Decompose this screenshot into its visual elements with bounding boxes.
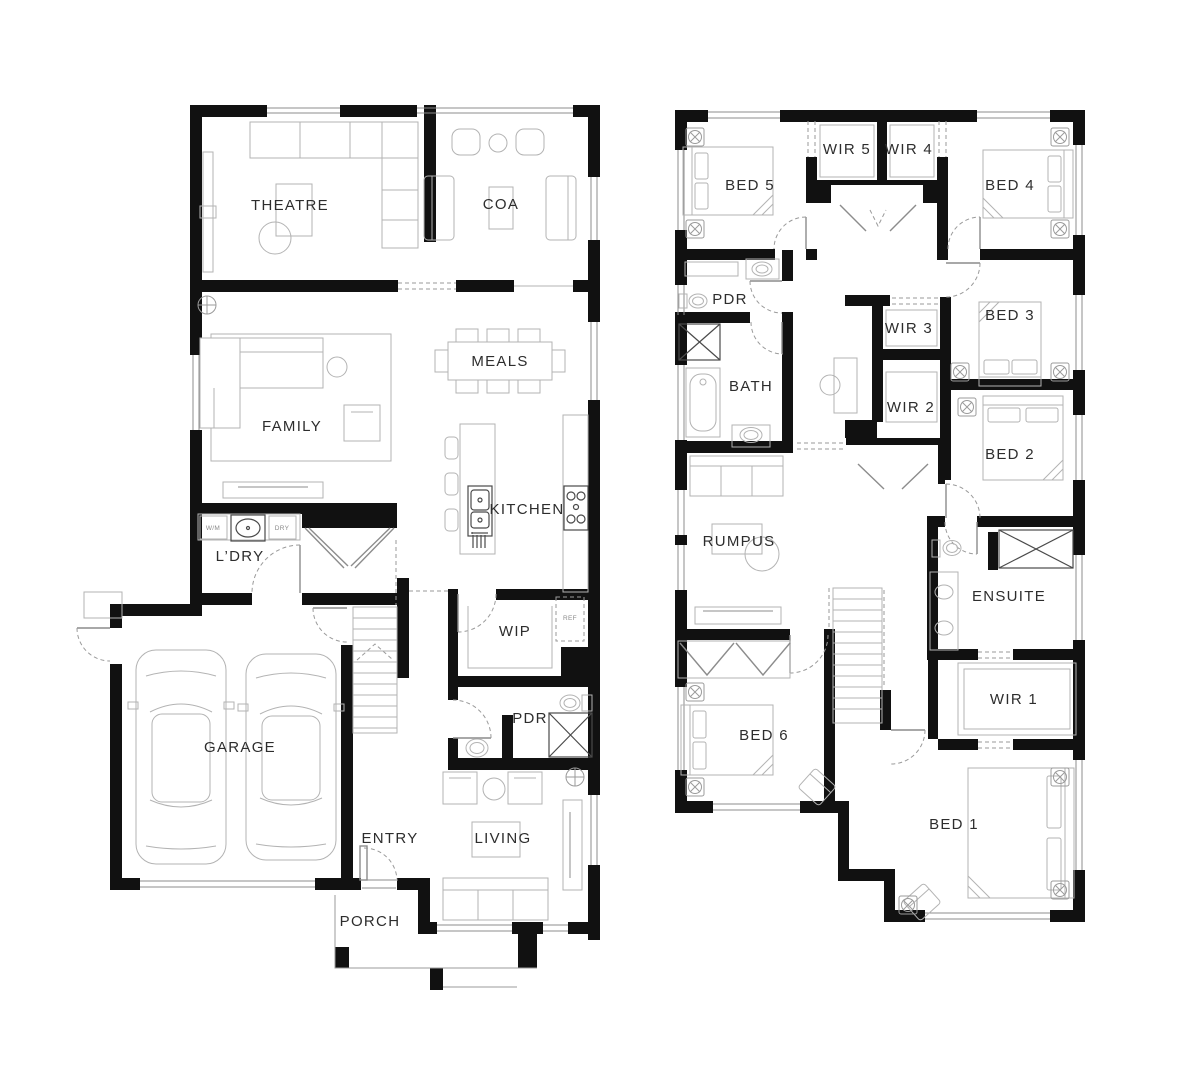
room-label-bed3: BED 3	[985, 307, 1035, 324]
ground-doors	[77, 528, 496, 888]
room-label-wir4: WIR 4	[885, 141, 933, 158]
room-label-bath: BATH	[729, 378, 773, 395]
stool	[445, 509, 458, 531]
cross-circle-icon	[566, 768, 584, 786]
room-label-wir1: WIR 1	[990, 691, 1038, 708]
x-circle-icon	[951, 363, 969, 381]
desk	[834, 358, 857, 413]
ground-floor-plan: W/M DRY	[77, 105, 600, 990]
room-label-bed1: BED 1	[929, 816, 979, 833]
room-label-garage: GARAGE	[204, 739, 276, 756]
x-circle-icon	[686, 778, 704, 796]
sofa	[546, 176, 576, 240]
family-furniture	[200, 334, 391, 498]
room-label-living: LIVING	[475, 830, 532, 847]
study-nook	[820, 358, 857, 413]
room-label-bed6: BED 6	[739, 727, 789, 744]
room-label-family: FAMILY	[262, 418, 322, 435]
stool	[445, 473, 458, 495]
room-label-rumpus: RUMPUS	[703, 533, 776, 550]
x-circle-icon	[958, 398, 976, 416]
armchair	[443, 772, 477, 804]
ground-walls	[110, 105, 600, 990]
room-label-powder: PDR	[512, 710, 548, 727]
sofa	[690, 456, 783, 496]
laundry-fixtures: W/M DRY	[198, 514, 300, 541]
x-circle-icon	[686, 220, 704, 238]
first-stairs	[833, 588, 882, 723]
bed	[968, 768, 1074, 898]
first-windows	[678, 112, 1082, 919]
washer-label: W/M	[206, 525, 220, 532]
kitchen-island	[460, 424, 495, 554]
kitchen-furniture	[445, 415, 588, 641]
theatre-sofa	[250, 122, 418, 158]
cross-circle-icon	[198, 296, 216, 314]
room-label-wir3: WIR 3	[885, 320, 933, 337]
room-label-entry: ENTRY	[361, 830, 418, 847]
armchair	[516, 129, 544, 155]
room-label-bed4: BED 4	[985, 177, 1035, 194]
fridge-label: REF	[563, 615, 577, 622]
car	[128, 650, 234, 864]
bed	[983, 396, 1063, 480]
x-circle-icon	[686, 683, 704, 701]
room-label-meals: MEALS	[471, 353, 528, 370]
floorplan-canvas: W/M DRY	[0, 0, 1191, 1079]
room-label-wir2: WIR 2	[887, 399, 935, 416]
room-label-wir5: WIR 5	[823, 141, 871, 158]
coach-furniture	[424, 129, 576, 240]
room-label-porch: PORCH	[340, 913, 401, 930]
x-circle-icon	[1051, 881, 1069, 899]
x-circle-icon	[686, 128, 704, 146]
ground-stairs	[353, 607, 397, 733]
room-label-ensuite: ENSUITE	[972, 588, 1046, 605]
cooktop	[564, 486, 588, 530]
room-label-kitchen: KITCHEN	[490, 501, 565, 518]
x-circle-icon	[1051, 128, 1069, 146]
ground-room-labels: THEATRE COA MEALS FAMILY KITCHEN L’DRY W…	[204, 196, 577, 930]
sofa	[443, 878, 548, 920]
toilet	[679, 294, 687, 308]
x-circle-icon	[1051, 768, 1069, 786]
x-circle-icon	[1051, 363, 1069, 381]
theatre-tv	[203, 152, 213, 272]
theatre-ottoman	[259, 222, 291, 254]
tv-unit	[563, 800, 582, 890]
tv-unit	[223, 482, 323, 498]
powder-shelf	[685, 262, 738, 276]
armchair	[344, 405, 380, 441]
bathtub	[686, 368, 720, 437]
room-label-bed5: BED 5	[725, 177, 775, 194]
armchair	[508, 772, 542, 804]
armchair	[452, 129, 480, 155]
room-label-bed2: BED 2	[985, 446, 1035, 463]
kitchen-bench	[563, 415, 588, 592]
first-walls	[675, 110, 1085, 922]
room-label-laundry: L’DRY	[216, 548, 265, 565]
car	[238, 654, 344, 860]
floorplan-drawing: W/M DRY	[0, 0, 1191, 1079]
room-label-coach: COA	[483, 196, 519, 213]
stool	[445, 437, 458, 459]
room-label-theatre: THEATRE	[251, 197, 329, 214]
linen-niche	[831, 185, 923, 203]
room-label-wip: WIP	[499, 623, 531, 640]
first-floor-plan: BED 5 WIR 5 WIR 4 BED 4 PDR BATH WIR 3 B…	[675, 110, 1085, 922]
tv-unit	[695, 607, 781, 624]
basin	[466, 739, 488, 757]
garage-cars	[128, 650, 344, 864]
x-circle-icon	[1051, 220, 1069, 238]
room-label-powder-first: PDR	[712, 291, 748, 308]
front-door-leaf	[360, 846, 367, 880]
dryer-label: DRY	[275, 525, 290, 532]
